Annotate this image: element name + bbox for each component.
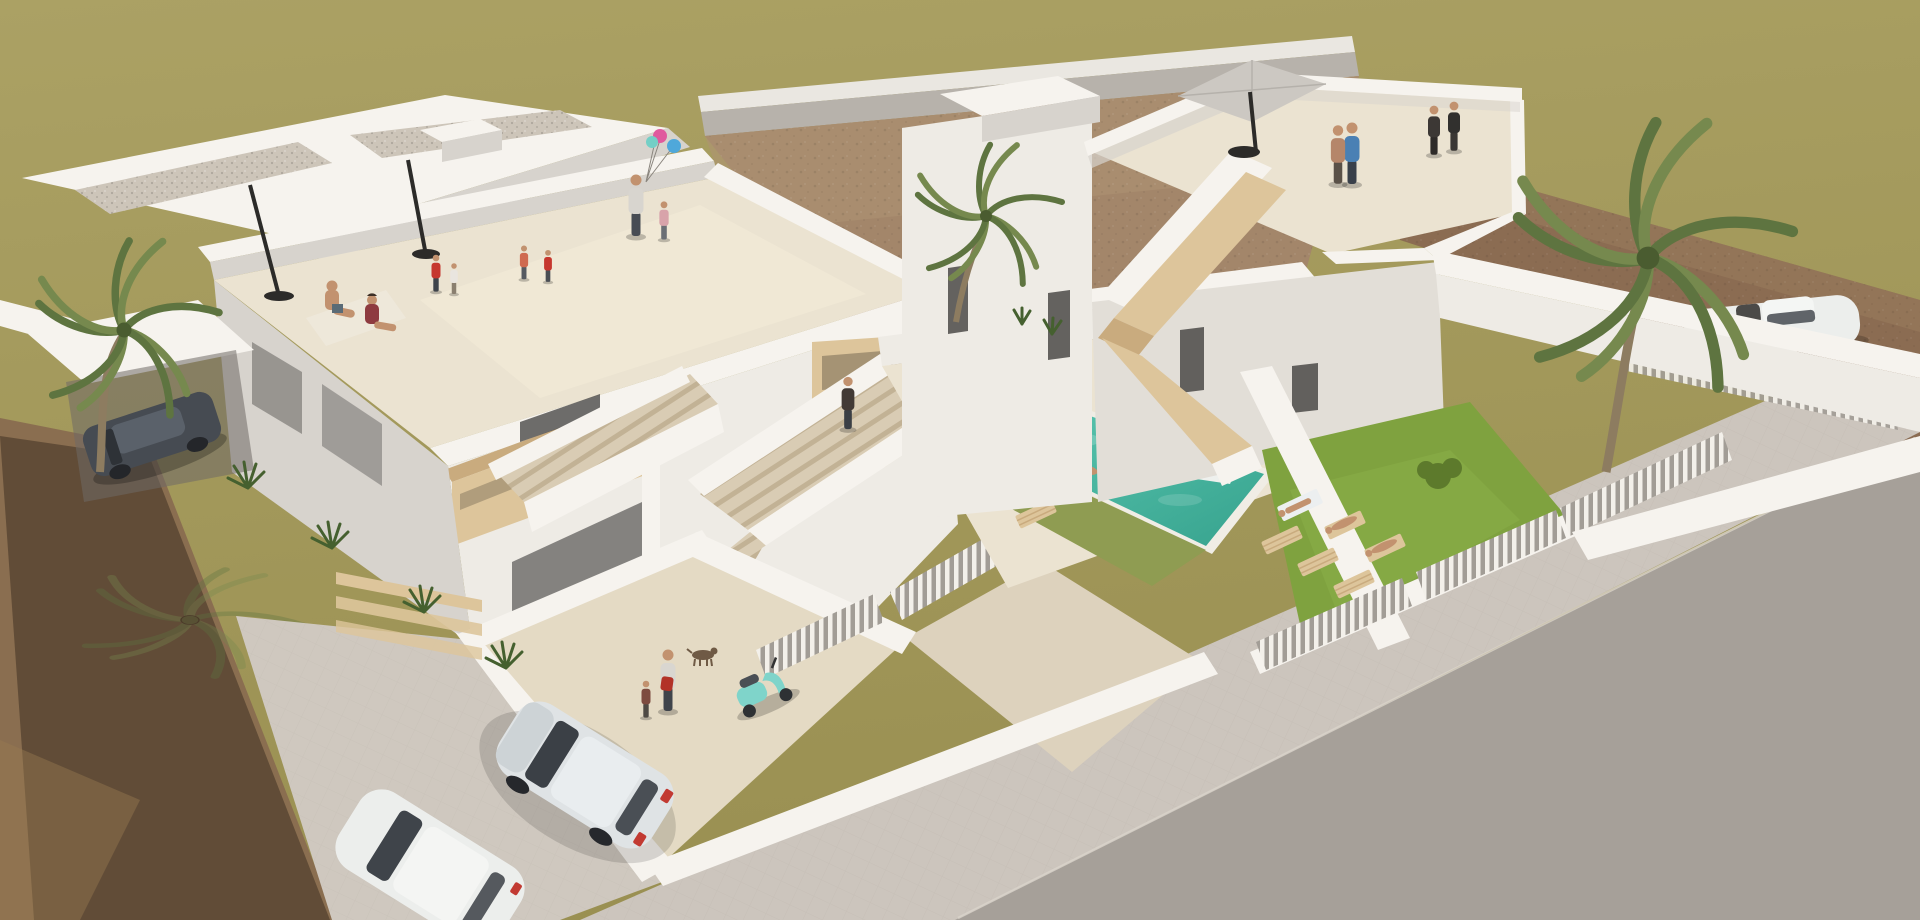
red-backpack (660, 676, 674, 692)
render-canvas (0, 0, 1920, 920)
architectural-render (0, 0, 1920, 920)
